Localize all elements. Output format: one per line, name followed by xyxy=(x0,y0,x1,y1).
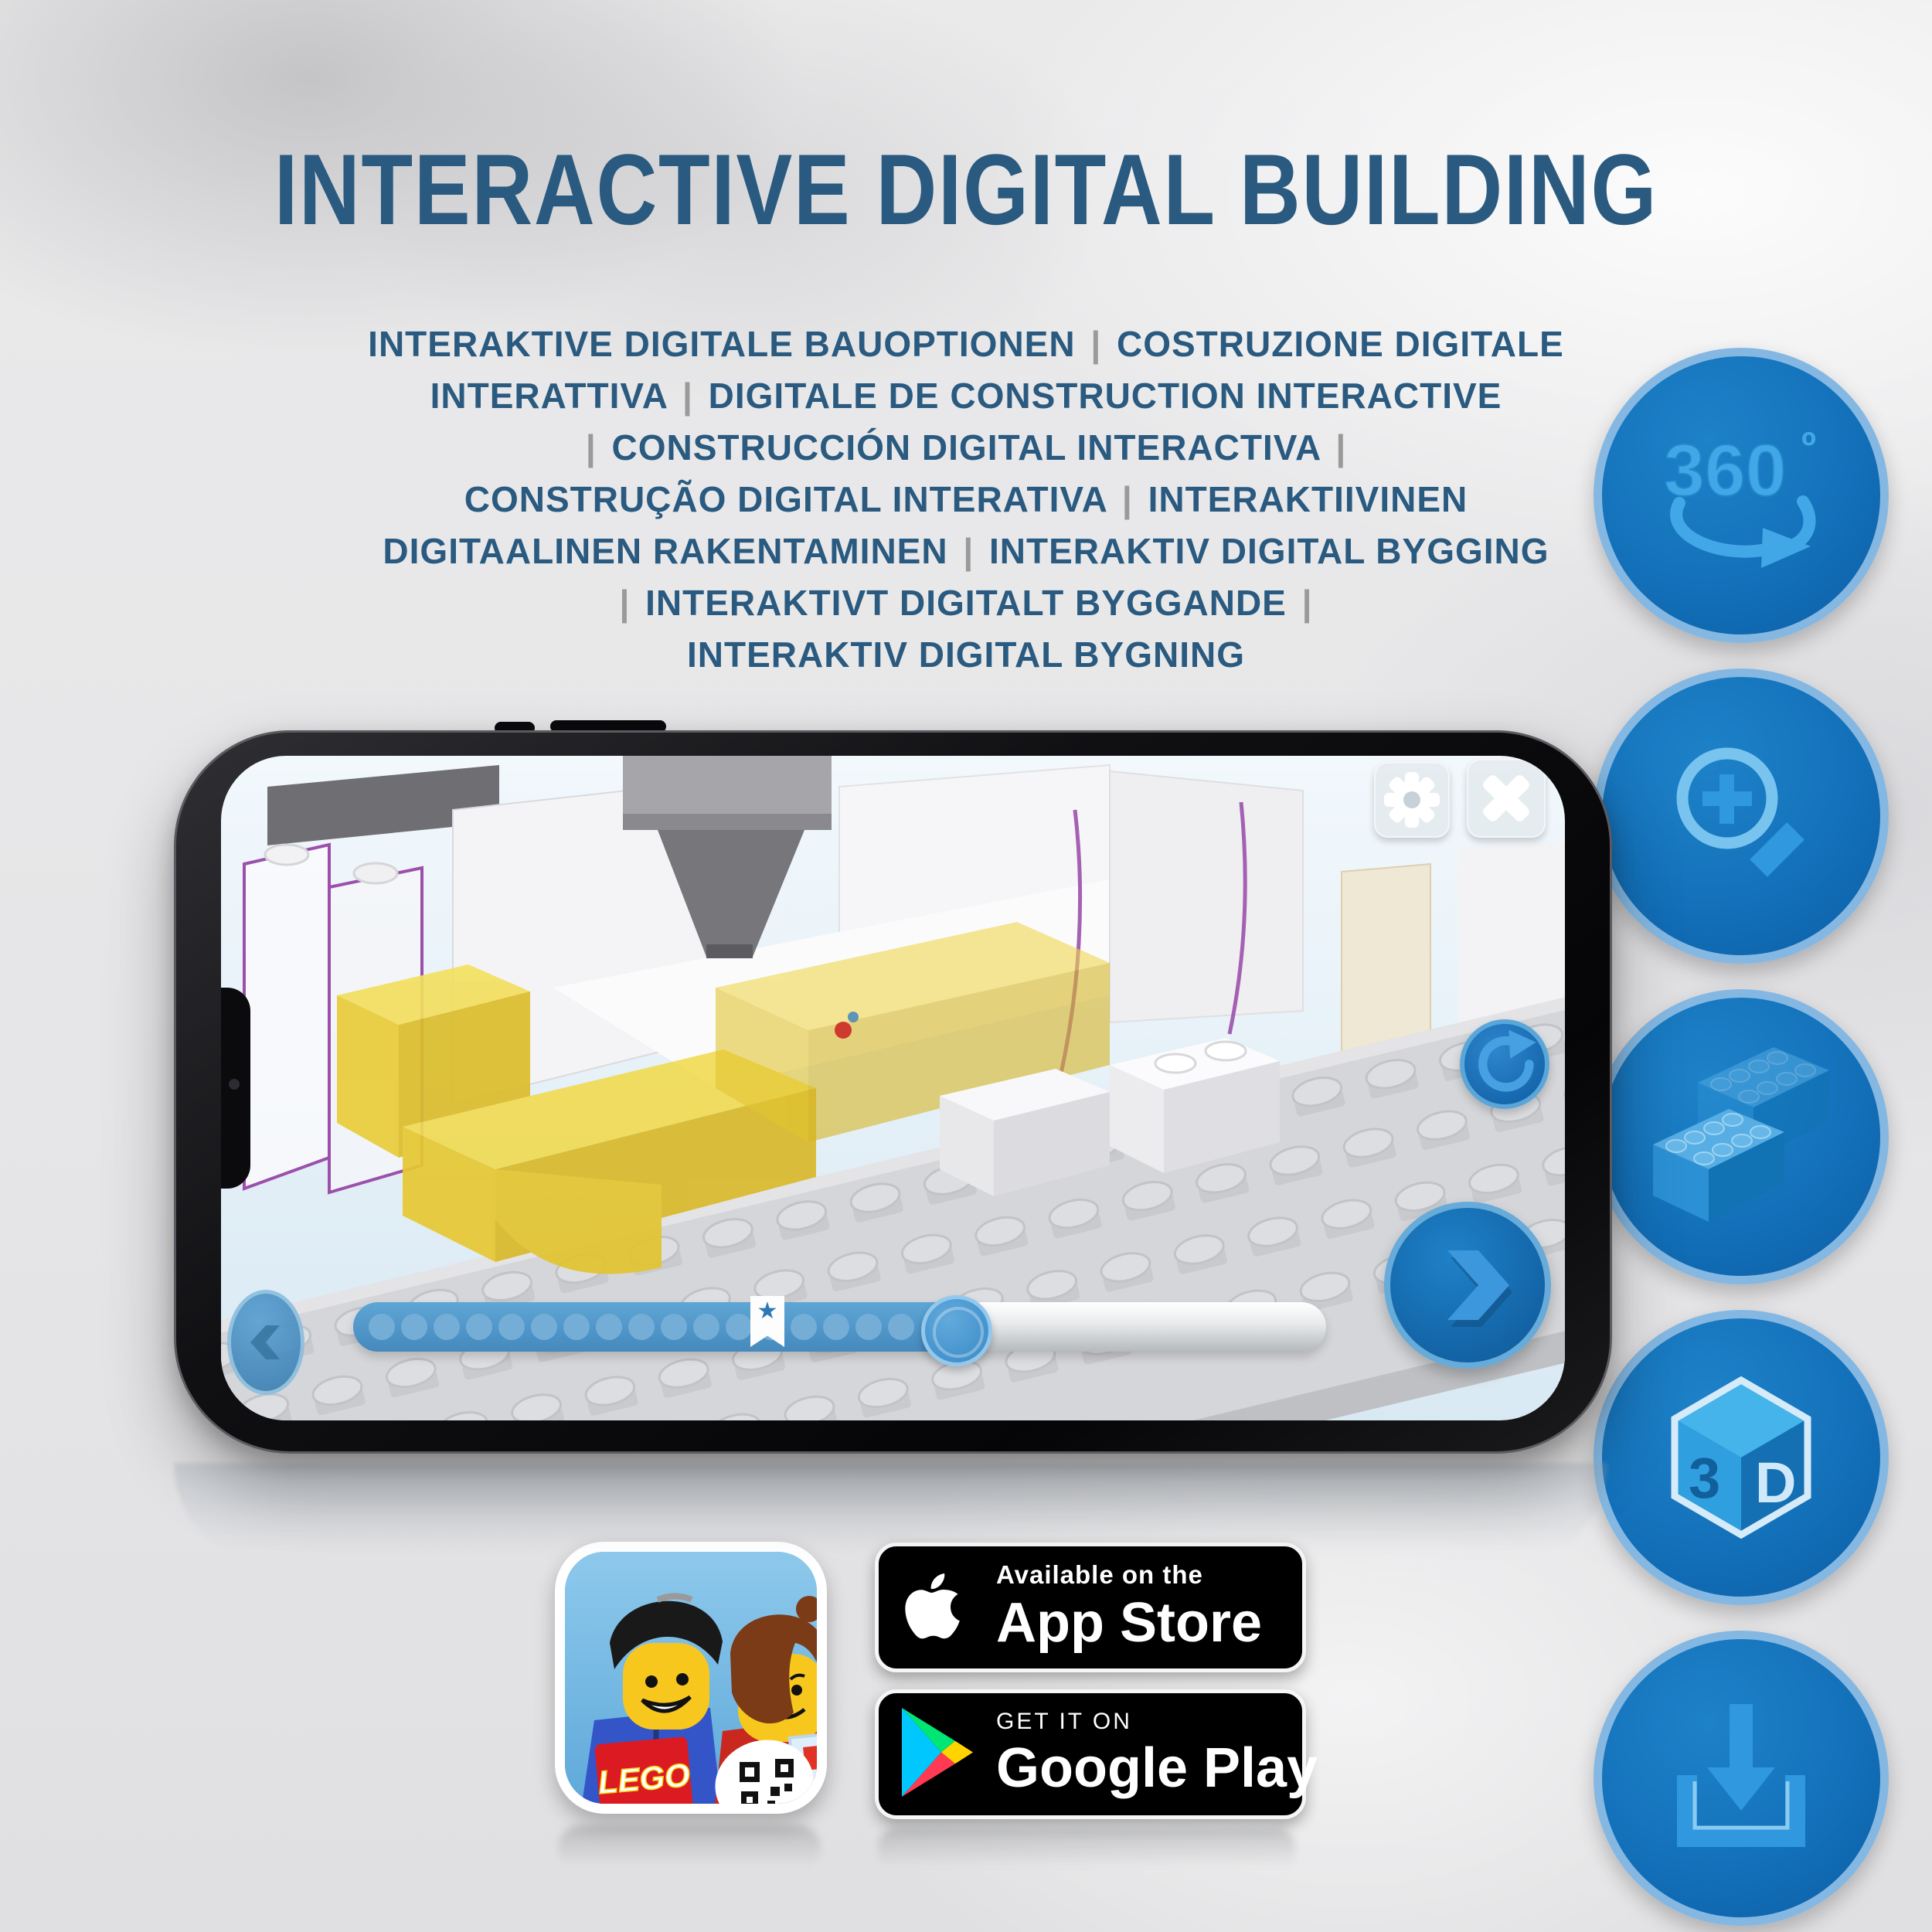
marketing-page: INTERACTIVE DIGITAL BUILDING INTERAKTIVE… xyxy=(0,0,1932,1932)
subtitle-line: DIGITAALINEN RAKENTAMINEN | INTERAKTIV D… xyxy=(174,526,1758,577)
close-button[interactable] xyxy=(1467,759,1546,838)
close-icon xyxy=(1468,760,1544,836)
progress-dot xyxy=(661,1314,687,1340)
download-icon xyxy=(1647,1684,1835,1872)
phone-mockup: ★ xyxy=(174,730,1612,1454)
progress-dot xyxy=(628,1314,655,1340)
progress-dot xyxy=(401,1314,427,1340)
google-play-icon xyxy=(902,1708,973,1801)
feature-brick-badge xyxy=(1594,989,1889,1284)
progress-knob[interactable] xyxy=(921,1295,992,1366)
subtitle-line: | CONSTRUCCIÓN DIGITAL INTERACTIVA | xyxy=(174,422,1758,474)
apple-icon xyxy=(902,1563,973,1653)
subtitle: INTERAKTIVE DIGITALE BAUOPTIONEN | COSTR… xyxy=(174,318,1758,681)
progress-dot xyxy=(855,1314,882,1340)
subtitle-line: CONSTRUÇÃO DIGITAL INTERATIVA | INTERAKT… xyxy=(174,474,1758,526)
progress-dot xyxy=(823,1314,849,1340)
subtitle-line: INTERATTIVA | DIGITALE DE CONSTRUCTION I… xyxy=(174,370,1758,422)
label-d: D xyxy=(1755,1451,1796,1515)
refresh-icon xyxy=(1469,1029,1540,1100)
progress-dot xyxy=(434,1314,460,1340)
app-store-name: App Store xyxy=(996,1591,1262,1655)
progress-dot xyxy=(726,1314,752,1340)
feature-360-badge: 360 º xyxy=(1594,348,1889,643)
progress-dot xyxy=(563,1314,590,1340)
chevron-left-icon xyxy=(235,1300,297,1385)
brick-building-icon xyxy=(1647,1043,1835,1231)
label-3: 3 xyxy=(1689,1446,1720,1510)
progress-dot xyxy=(531,1314,557,1340)
settings-button[interactable] xyxy=(1374,762,1450,838)
rotate-360-icon: 360 º xyxy=(1650,404,1832,587)
chevron-right-icon xyxy=(1390,1208,1545,1362)
next-step-button[interactable] xyxy=(1384,1202,1551,1369)
feature-zoom-badge xyxy=(1594,668,1889,964)
subtitle-line: INTERAKTIVE DIGITALE BAUOPTIONEN | COSTR… xyxy=(174,318,1758,370)
lego-minifigures-art: LEGO xyxy=(565,1552,817,1804)
progress-dot xyxy=(498,1314,525,1340)
ghost-brick-outline xyxy=(244,845,329,1189)
degree-mark: º xyxy=(1801,424,1816,469)
gear-icon xyxy=(1376,764,1448,836)
page-title: INTERACTIVE DIGITAL BUILDING xyxy=(155,131,1777,247)
badge-reflection xyxy=(878,1828,1295,1871)
progress-dot xyxy=(466,1314,492,1340)
camera-notch xyxy=(221,988,250,1189)
progress-dot xyxy=(791,1314,817,1340)
app-store-tagline: Available on the xyxy=(996,1560,1262,1590)
feature-3d-badge: 3 D xyxy=(1594,1310,1889,1605)
progress-dot xyxy=(369,1314,395,1340)
google-play-badge[interactable]: GET IT ON Google Play xyxy=(875,1689,1306,1819)
app-icon-reflection xyxy=(558,1825,821,1872)
subtitle-line: | INTERAKTIVT DIGITALT BYGGANDE | xyxy=(174,577,1758,629)
cube-3d-icon: 3 D xyxy=(1648,1365,1834,1550)
progress-dot xyxy=(596,1314,622,1340)
camera-icon xyxy=(229,1079,240,1090)
refresh-button[interactable] xyxy=(1460,1019,1549,1109)
build-progress-bar[interactable]: ★ xyxy=(353,1302,1326,1352)
previous-step-button[interactable] xyxy=(227,1290,304,1395)
lego-logo: LEGO xyxy=(594,1736,693,1804)
feature-download-badge xyxy=(1594,1631,1889,1926)
lego-app-icon[interactable]: LEGO xyxy=(555,1542,827,1814)
progress-dot xyxy=(888,1314,914,1340)
app-screen: ★ xyxy=(221,756,1565,1420)
google-play-name: Google Play xyxy=(996,1736,1318,1800)
subtitle-line: INTERAKTIV DIGITAL BYGNING xyxy=(174,629,1758,681)
zoom-in-icon xyxy=(1650,725,1832,907)
app-store-badge[interactable]: Available on the App Store xyxy=(875,1543,1306,1672)
google-play-tagline: GET IT ON xyxy=(996,1709,1318,1735)
progress-fill xyxy=(353,1302,968,1352)
progress-dot xyxy=(693,1314,719,1340)
